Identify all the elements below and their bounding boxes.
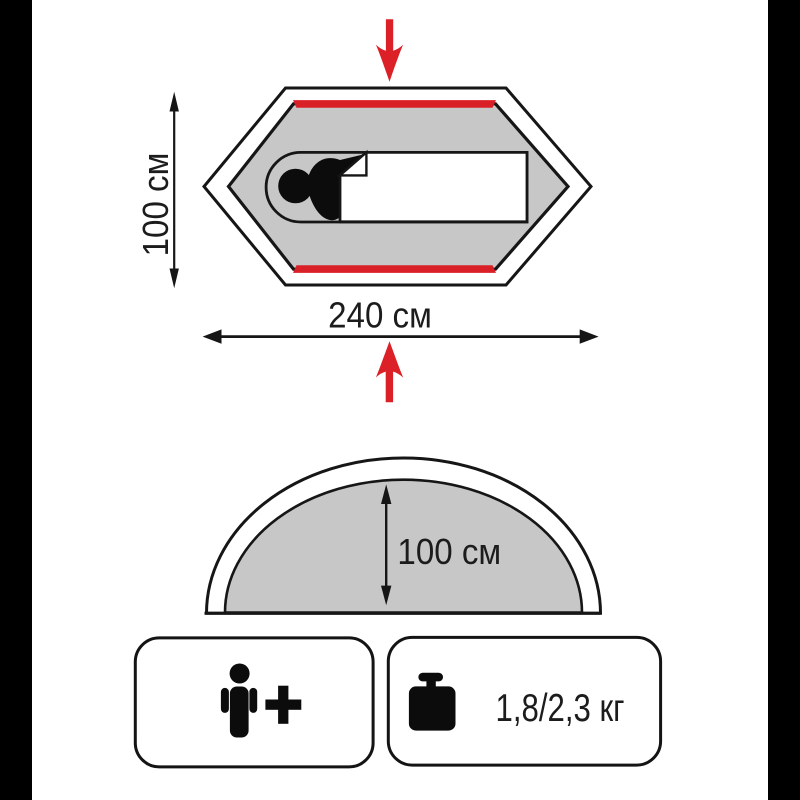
svg-text:240 см: 240 см: [328, 296, 432, 336]
svg-text:1,8/2,3 кг: 1,8/2,3 кг: [495, 687, 624, 730]
svg-text:100 см: 100 см: [137, 153, 177, 257]
svg-text:100 см: 100 см: [397, 533, 501, 573]
